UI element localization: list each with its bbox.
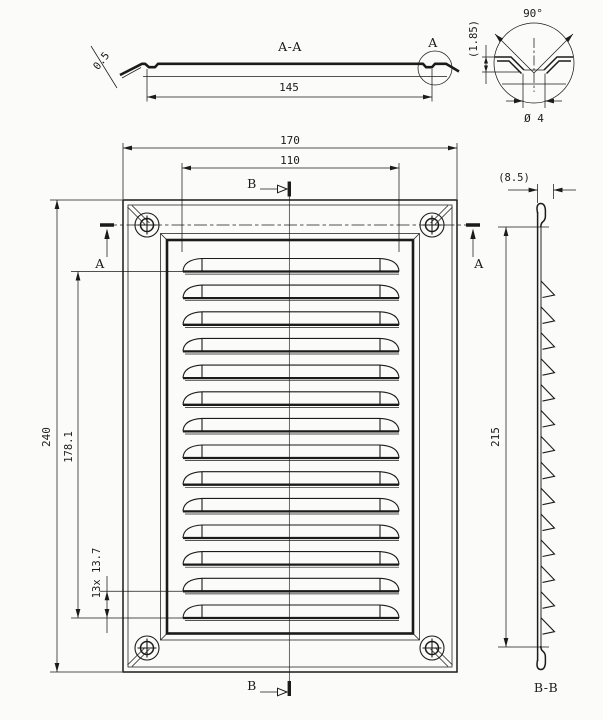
corner-miter-marks [128, 206, 453, 667]
detail-a-callout-circle [418, 51, 452, 85]
dim-depth: (8.5) [498, 172, 576, 203]
section-bb-view: 215 (8.5) B-B [489, 172, 576, 695]
section-b-label-top: B [247, 176, 257, 191]
dim-110-label: 110 [280, 154, 300, 167]
screw-bottom-left [135, 636, 159, 660]
screw-bottom-right [420, 636, 444, 660]
detail-a-view: 90° (1.85) Ø 4 [468, 7, 574, 125]
dim-louver-width: 110 [182, 154, 399, 252]
section-aa-title: A-A [277, 39, 302, 54]
thickness-label: 0.5 [91, 50, 112, 72]
louver-slat-shadow-lines [185, 274, 399, 620]
section-b-label-bottom: B [247, 678, 257, 693]
cut-plate-profile [120, 64, 459, 75]
dim-170-label: 170 [280, 134, 300, 147]
drawing-sheet: A-A A 0.5 145 90° [0, 0, 603, 720]
dim-90-label: 90° [523, 7, 543, 20]
detail-a-marker-label: A [427, 35, 438, 50]
technical-drawing: A-A A 0.5 145 90° [0, 0, 603, 720]
dim-85-label: (8.5) [498, 172, 530, 184]
louver-teeth-profile [541, 281, 555, 634]
louver-group [183, 259, 399, 621]
front-view: 170 110 240 178.1 13x 13.7 [40, 134, 484, 696]
section-a-label-right: A [473, 256, 484, 271]
dim-145-label: 145 [279, 81, 299, 94]
dim-13x-label: 13x 13.7 [91, 548, 103, 599]
dim-240-label: 240 [40, 427, 53, 447]
dim-178-label: 178.1 [63, 431, 75, 463]
dim-215-label: 215 [489, 427, 502, 447]
dim-louver-pitch: 13x 13.7 [91, 548, 183, 633]
section-a-label-left: A [94, 256, 105, 271]
dim-inner-height: 215 [489, 227, 549, 647]
section-bb-title: B-B [534, 680, 558, 695]
dim-overall-height: 240 [40, 200, 122, 672]
dim-185-label: (1.85) [468, 20, 480, 58]
dim-hole-spacing: 145 [147, 69, 432, 102]
dim-dia4-label: Ø 4 [524, 112, 544, 125]
section-aa-view: A-A A 0.5 145 [91, 35, 459, 102]
